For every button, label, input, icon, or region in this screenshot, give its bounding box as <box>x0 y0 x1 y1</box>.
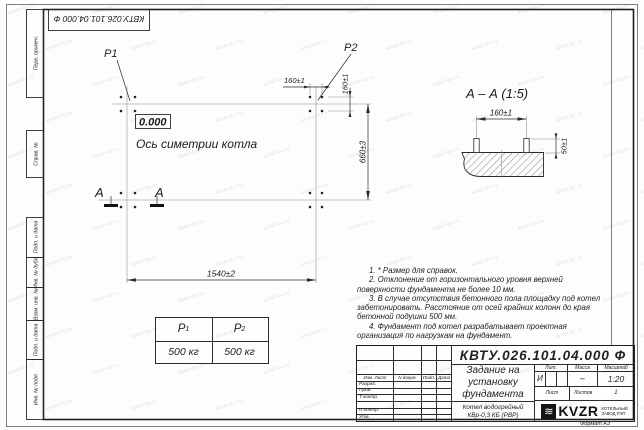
product-line-1: Котел водогрейный <box>463 404 524 412</box>
elevation-label: 0.000 <box>139 117 167 129</box>
plan-view: P1 P2 0.000 Ось симетрии котла 160±1 160… <box>94 42 371 283</box>
dim-1540: 1540±2 <box>127 269 316 281</box>
sheets-cell: Листов 1 <box>570 386 634 400</box>
note-1: 1. * Размер для справок. <box>357 266 613 275</box>
note-2: 2. Отклонение от горизонтального уровня … <box>357 275 613 294</box>
sheets-value: 1 <box>614 390 617 396</box>
margin-label-inv-podl: Инв. № подл. <box>34 373 40 405</box>
anchor-bolt-points <box>120 96 324 209</box>
sheet-label: Лист <box>535 386 569 400</box>
section-view-title: А – А (1:5) <box>465 86 528 101</box>
sig-prov: Пров. <box>357 388 393 395</box>
logo-cell: ≋ KVZR КОТЕЛЬНЫЙ ЗАВОД РЭП <box>535 401 634 421</box>
title-block-product: Котел водогрейный КВр-0,3 КБ (РВР) <box>452 402 534 421</box>
margin-graphs: Перв. примен. Справ. № Подп. и дата Инв.… <box>27 10 44 420</box>
dim-160-horizontal: 160±1 <box>283 76 330 88</box>
p1-sub: 1 <box>185 326 189 333</box>
scale-value: 1:20 <box>598 371 634 386</box>
margin-label-sprav-n: Справ. № <box>34 142 40 166</box>
note-3: 3. В случае отсутствия бетонного пола пл… <box>357 294 613 322</box>
dim-160-vertical: 160±1 <box>341 74 352 117</box>
sig-nkontr: Н.контр. <box>357 408 393 415</box>
dim-660-label: 660±3 <box>359 140 368 163</box>
dim-660: 660±3 <box>359 104 369 200</box>
logo-wave-glyph: ≋ <box>544 405 553 418</box>
title-block: Изм. Лист N докум. Подп. Дата Разраб. Пр… <box>356 345 635 422</box>
lit-value: И <box>535 371 545 386</box>
margin-label-vzam-inv: Взам. инв. № <box>34 288 40 320</box>
title-line-1: Задание на <box>466 365 519 377</box>
dim-160-h-label: 160±1 <box>284 76 305 85</box>
p1-leader-line <box>117 60 130 101</box>
section-view: А – А (1:5) 160±1 50±1 <box>462 86 569 178</box>
kvzr-logo-text: KVZR <box>558 403 598 419</box>
rev-header-n-dokum: N докум. <box>394 374 421 381</box>
note-4: 4. Фундамент под котел разрабатывает про… <box>357 322 613 341</box>
rev-header-izm-list: Изм. Лист <box>357 374 393 381</box>
margin-label-podp-data-2: Подп. и дата <box>34 324 40 357</box>
load-table-value-p2: 500 кг <box>212 341 267 362</box>
p1-base: P <box>178 323 186 335</box>
anchor-bolt-right <box>524 139 529 153</box>
sig-empty <box>357 401 393 408</box>
format-label: Формат А3 <box>560 421 630 427</box>
p1-label: P1 <box>104 48 117 60</box>
doc-number-box: КВТУ.026.101.04.000 Ф <box>49 10 150 31</box>
anchor-bolt-left <box>474 139 479 153</box>
load-table-header-p1: P1 <box>156 318 211 340</box>
section-dim-160-label: 160±1 <box>490 109 512 118</box>
rev-header-data: Дата <box>437 374 451 381</box>
title-line-2: установку <box>468 377 518 389</box>
load-table-value-p1: 500 кг <box>156 341 211 362</box>
dim-1540-label: 1540±2 <box>207 269 236 279</box>
p2-sub: 2 <box>241 326 245 333</box>
title-line-3: фундамента <box>462 389 523 401</box>
product-line-2: КВр-0,3 КБ (РВР) <box>467 412 518 420</box>
sig-tkontr: Т.контр. <box>357 394 393 401</box>
dim-160-v-label: 160±1 <box>341 74 350 95</box>
boiler-axis-label: Ось симетрии котла <box>136 137 257 151</box>
section-dim-50-label: 50±1 <box>560 138 569 155</box>
drawing-sheet: { "watermark": "kotel-kv.ru", "frame": {… <box>0 0 644 430</box>
section-letter-left: А <box>94 185 104 200</box>
p2-label: P2 <box>344 42 357 54</box>
section-letter-right: А <box>154 185 164 200</box>
sig-utv: Утв. <box>357 414 393 421</box>
scale-header: Масштаб <box>598 364 634 371</box>
concrete-foundation-section <box>462 153 544 177</box>
plan-construction-lines <box>98 83 371 283</box>
mass-header: Масса <box>568 364 597 371</box>
logo-sub-line-2: ЗАВОД РЭП <box>601 411 627 416</box>
doc-number-rotated: КВТУ.026.101.04.000 Ф <box>53 14 144 24</box>
margin-label-perv-primen: Перв. примен. <box>34 36 40 70</box>
sig-razrab: Разраб. <box>357 381 393 388</box>
section-cut-marks: А А <box>94 185 164 206</box>
mass-value: – <box>568 371 597 386</box>
rev-header-podp: Подп. <box>422 374 436 381</box>
section-dim-160: 160±1 <box>477 109 527 139</box>
margin-label-podp-data-1: Подп. и дата <box>34 221 40 254</box>
kvzr-logo-subtitle: КОТЕЛЬНЫЙ ЗАВОД РЭП <box>601 406 627 416</box>
title-block-title: Задание на установку фундамента <box>452 365 534 401</box>
lit-header: Лит. <box>535 364 567 371</box>
notes-block: 1. * Размер для справок. 2. Отклонение о… <box>357 266 613 340</box>
margin-label-inv-dubl: Инв. № дубл. <box>34 256 40 288</box>
kvzr-logo-icon: ≋ <box>541 404 556 419</box>
load-table-header-p2: P2 <box>212 318 267 340</box>
load-table: P1 P2 500 кг 500 кг <box>155 317 269 364</box>
title-block-code: КВТУ.026.101.04.000 Ф <box>452 346 634 364</box>
sheets-label: Листов <box>574 390 592 396</box>
